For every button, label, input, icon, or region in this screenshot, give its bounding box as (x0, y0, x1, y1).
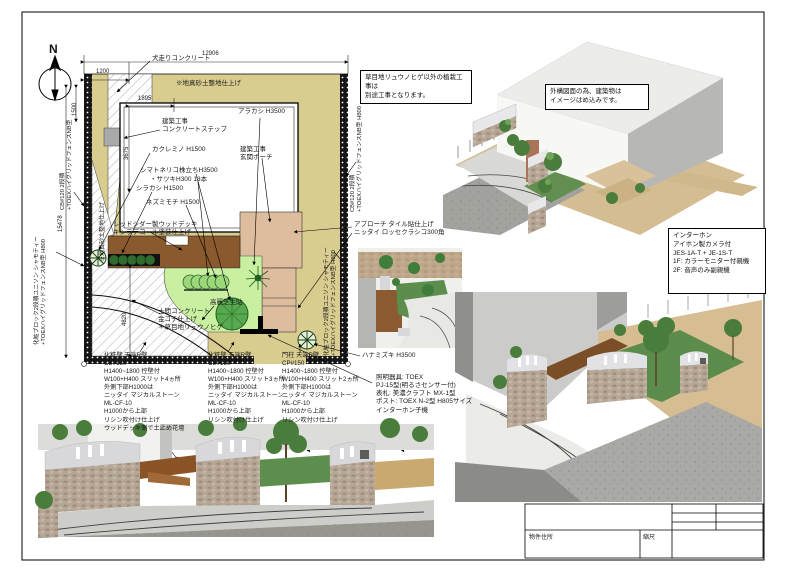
spec-block-gate-pillar: 門柱 天端R壁 CP#150 H1400~1800 控壁付 W100+H400 … (282, 352, 374, 425)
label-nezumimochi: ネズミモチ H1500 (146, 199, 199, 207)
label-lawn: 高麗芝生貼 (210, 299, 243, 307)
label-lighting: 照明器具: TOEX PJ-15型(明るさセンサー付) 表札: 美濃クラフト M… (376, 374, 472, 415)
title-block-scale-label: 縮尺 (643, 532, 655, 541)
dim-left-overall: 15478 (58, 215, 64, 232)
label-fence-left-upper: CB#120 2段積 +TOEXハイグリッドフェンスNB型 (60, 119, 74, 210)
label-fence-right-upper: CB#120 2段積 +TOEXハイグリッドフェンスNB型 H800 (350, 106, 364, 212)
note-intercom: インターホン アイホン製カメラ付 JES-1A-T + JE-1S-T 1F: … (668, 228, 766, 294)
dim-top-offset: 1200 (96, 69, 109, 75)
label-satsuki: ・サツキH300 13本 (150, 176, 207, 184)
title-block-address-label: 物件住所 (529, 532, 553, 541)
label-fence-left-lower: 化粧ブロック2段積ユニソン シャモティー +TOEXハイグリッドフェンスNB型 … (34, 236, 48, 345)
drawing-sheet: N 12906 1200 1895 1500 3675 15478 4820 犬… (0, 0, 800, 583)
title-block-grid (525, 504, 763, 558)
label-shirakashi: シラカシ H1500 (136, 185, 183, 193)
label-porch-work: 建築工事 玄関ポーチ (240, 146, 273, 162)
label-wood-deck: レッドシダー製ウッドデッキ キシラデコール塗装仕上げ (113, 221, 198, 237)
note-building-image: 外構図面の為、建築物は イメージはめ込みです。 (545, 84, 649, 110)
dim-step-height: 3675 (124, 147, 130, 160)
dim-step-width: 1895 (138, 96, 151, 102)
label-inubashiri: 犬走りコンクリート (152, 55, 211, 63)
label-step-work: 建築工事 コンクリートステップ (162, 118, 227, 134)
render-elevation (35, 417, 434, 538)
dim-left-lower: 4820 (122, 313, 128, 326)
dim-left-small: 1500 (72, 103, 78, 116)
render-plan-small (358, 248, 462, 348)
note-planting: 草目地リュウノヒゲ以外の植栽工事は 別途工事となります。 (360, 70, 472, 104)
label-shimatoneriko: シマトネリコ株立ちH3500 (140, 167, 218, 175)
render-aerial-view (443, 42, 758, 235)
north-label: N (49, 42, 58, 56)
label-kakuremino: カクレミノ H1500 (152, 146, 205, 154)
label-arakashi: アラカシ H3500 (238, 108, 285, 116)
label-masado-side: ※地真砂土整地仕上げ (100, 202, 108, 262)
render-front-view (455, 284, 762, 502)
label-fence-right-lower: 化粧ブロック2段積ユニソン シャモティー +TOEXハイグリッドフェンスNB型 … (324, 247, 338, 356)
label-doma-concrete: 土間コンクリート 金コテ仕上げ ＊草目地リュウノヒゲ (158, 308, 223, 332)
spec-block-wall-1: 化粧壁 天端R壁 CB#150 H1400~1800 控壁付 W100+H400… (104, 352, 204, 433)
label-masado: ※地真砂土整地仕上げ (176, 80, 241, 88)
label-approach: アプローチ タイル貼仕上げ ニッタイ ロッセクラシコ300角 (354, 221, 445, 237)
